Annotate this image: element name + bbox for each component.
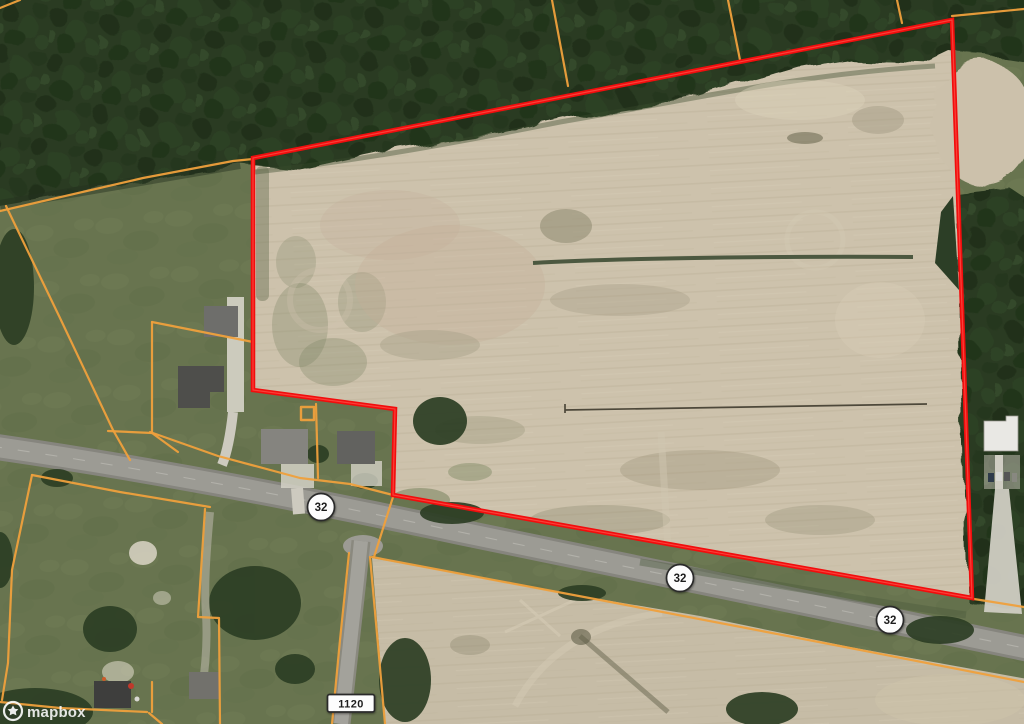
- satellite-map: 32 32 32 1120 mapbox: [0, 0, 1024, 724]
- house: [984, 416, 1018, 451]
- route-shield-32-east: 32: [877, 607, 904, 634]
- route-shield-32-west: 32: [308, 494, 335, 521]
- mapbox-attribution[interactable]: mapbox: [4, 702, 86, 721]
- shield-label: 32: [315, 502, 328, 514]
- vehicle-dot: [135, 697, 140, 702]
- map-viewport[interactable]: 32 32 32 1120 mapbox: [0, 0, 1024, 724]
- shield-label: 32: [674, 573, 687, 585]
- house: [261, 429, 308, 464]
- house: [337, 431, 375, 464]
- vehicle-dot: [102, 677, 106, 681]
- route-shield-1120: 1120: [328, 695, 375, 713]
- house: [94, 681, 131, 708]
- shield-label: 1120: [338, 699, 363, 711]
- house: [189, 672, 220, 699]
- route-shield-32-center: 32: [667, 565, 694, 592]
- mapbox-wordmark: mapbox: [27, 704, 86, 721]
- vehicle-dot: [128, 683, 134, 689]
- shield-label: 32: [884, 615, 897, 627]
